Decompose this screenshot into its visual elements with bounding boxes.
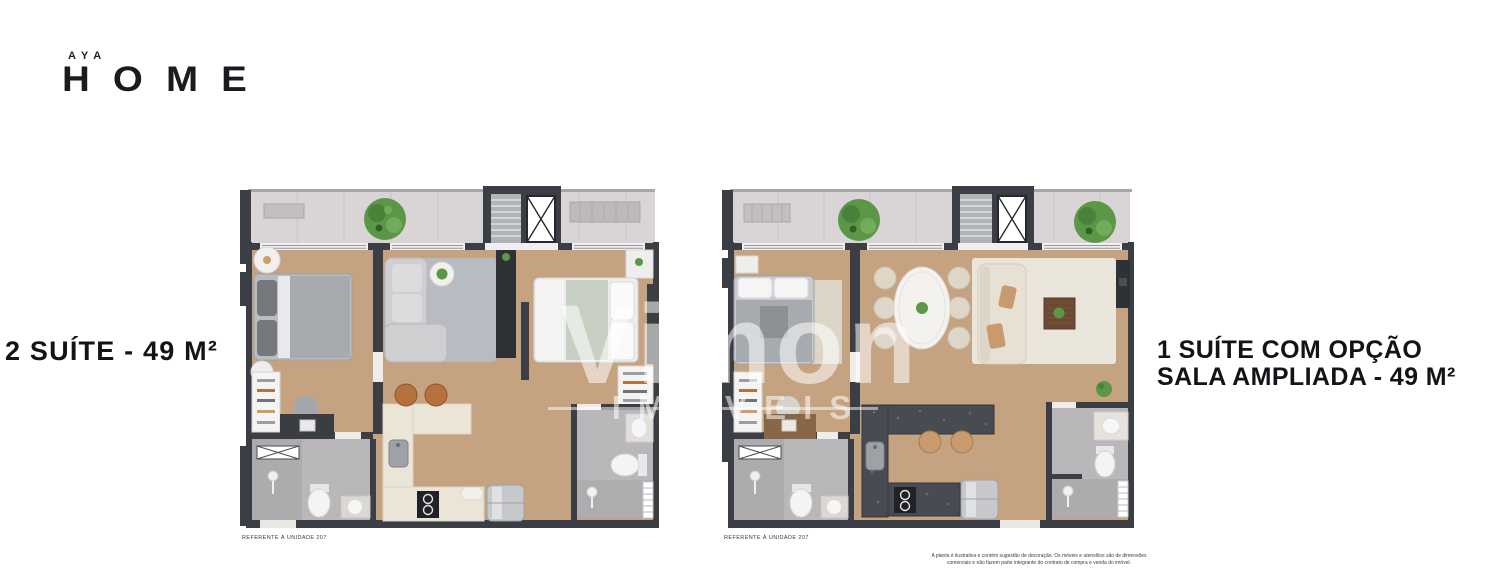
partition-wall <box>521 302 529 380</box>
dining-chair <box>874 327 896 349</box>
bar-stool <box>919 431 941 453</box>
toilet-icon <box>308 484 330 517</box>
plant-icon <box>364 198 406 240</box>
stairs-icon <box>960 194 992 244</box>
bar-stool <box>425 384 447 406</box>
fridge-icon <box>487 485 524 521</box>
dining-set <box>874 267 970 349</box>
bar-stool <box>395 384 417 406</box>
dining-chair <box>874 267 896 289</box>
coffee-table <box>1044 298 1075 329</box>
dining-chair <box>874 297 896 319</box>
plan-right-title-line2: SALA AMPLIADA - 49 M² <box>1157 364 1456 391</box>
vanity-sink <box>341 496 370 518</box>
door <box>335 432 361 439</box>
brand-name-home: HOME <box>62 62 270 99</box>
plan-right-caption: REFERENTE À UNIDADE 207 <box>724 535 809 541</box>
dining-chair <box>948 297 970 319</box>
plant-icon <box>838 199 880 241</box>
balcony-bench <box>264 204 304 218</box>
sofa <box>978 264 1026 364</box>
door <box>373 352 383 382</box>
door <box>577 404 601 410</box>
plan-left-title: 2 SUÍTE - 49 M² <box>5 336 218 367</box>
bar-stool <box>951 431 973 453</box>
plan-right-title: 1 SUÍTE COM OPÇÃO SALA AMPLIADA - 49 M² <box>1157 337 1456 391</box>
suite2-bed <box>534 278 638 362</box>
window-band <box>250 243 655 250</box>
disclaimer-line2: comerciais e não fazem parte integrante … <box>914 560 1164 567</box>
partition-wall <box>850 248 860 434</box>
window-band <box>732 243 1130 250</box>
plant-icon <box>1096 381 1112 397</box>
disclaimer-line1: A planta é ilustrativa e contém sugestão… <box>914 553 1164 560</box>
dining-chair <box>948 267 970 289</box>
suite-bed <box>734 276 814 364</box>
toilet-icon <box>1095 446 1115 477</box>
door <box>1052 402 1076 408</box>
tv-panel <box>1116 260 1130 308</box>
door <box>850 352 860 382</box>
nightstand <box>736 256 758 273</box>
entrance-door <box>1000 520 1040 528</box>
plan-right-title-line1: 1 SUÍTE COM OPÇÃO <box>1157 337 1456 364</box>
fridge-icon <box>961 480 998 519</box>
bathroom-east <box>1046 402 1128 520</box>
plant-icon <box>1074 201 1116 243</box>
nightstand <box>626 250 653 278</box>
bathroom-sw <box>252 439 376 527</box>
side-table <box>254 247 280 273</box>
page-canvas: AYA HOME 2 SUÍTE - 49 M² 1 SUÍTE COM OPÇ… <box>0 0 1498 587</box>
dining-chair <box>948 327 970 349</box>
shower-panel <box>1118 481 1128 517</box>
floorplan-left-drawing <box>240 186 665 531</box>
toilet-icon <box>790 484 812 517</box>
elevator-icon <box>527 196 555 242</box>
door <box>817 432 838 439</box>
stairs-icon <box>491 194 521 244</box>
drying-rack <box>257 446 299 459</box>
partition-wall <box>373 248 383 434</box>
bathroom-se <box>571 404 655 520</box>
shower-panel <box>643 482 653 518</box>
bedroom-rug <box>810 280 842 364</box>
vanity-sink <box>1094 412 1128 440</box>
floorplan-left: REFERENTE À UNIDADE 207 <box>240 186 665 546</box>
stair-elevator-core <box>483 186 561 250</box>
vanity-sink <box>626 414 653 442</box>
brand-logo: AYA HOME <box>62 50 251 99</box>
balcony <box>248 189 655 246</box>
closet <box>734 372 762 432</box>
kitchen-sink <box>866 442 884 470</box>
kitchen-sink <box>389 440 408 467</box>
balcony-lounger <box>744 204 790 222</box>
wardrobe <box>618 366 653 410</box>
drying-rack <box>739 446 781 459</box>
shower <box>1052 479 1128 518</box>
cooktop <box>894 487 916 513</box>
bathroom-sw <box>734 439 854 527</box>
vanity-sink <box>821 496 848 518</box>
stair-elevator-core <box>952 186 1034 250</box>
suite1-bed <box>254 274 352 360</box>
floorplan-right-drawing <box>722 186 1140 531</box>
shower <box>577 480 653 518</box>
toilet-icon <box>611 454 647 476</box>
disclaimer: A planta é ilustrativa e contém sugestão… <box>914 553 1164 567</box>
closet <box>252 372 280 432</box>
coffee-side-table <box>430 262 454 286</box>
floorplan-right: REFERENTE À UNIDADE 207 <box>722 186 1140 546</box>
balcony <box>730 189 1132 246</box>
plan-left-caption: REFERENTE À UNIDADE 207 <box>242 535 327 541</box>
tv-panel <box>496 250 516 358</box>
entrance-door <box>260 520 296 528</box>
cooktop <box>417 491 439 518</box>
elevator-icon <box>998 196 1026 242</box>
